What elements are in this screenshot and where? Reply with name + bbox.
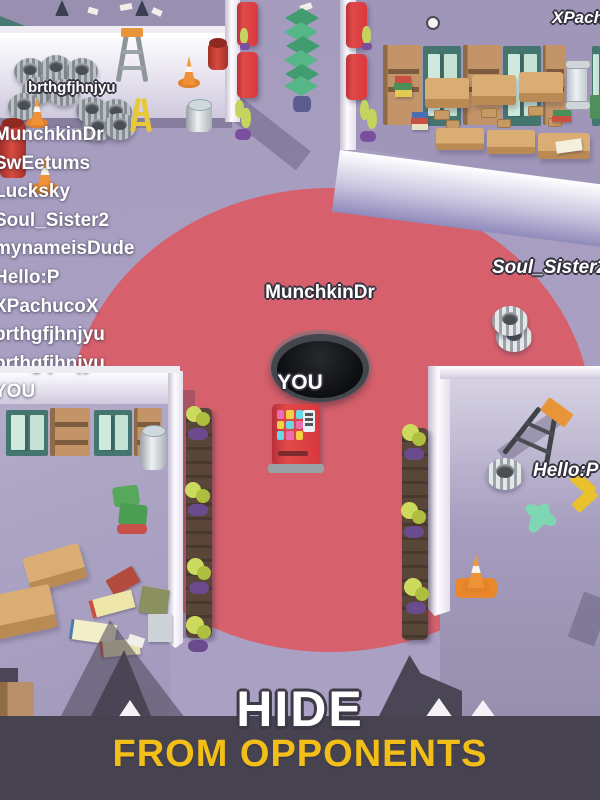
wall-segment [440, 366, 600, 379]
leaderboard-entry: brthgfjhnjyu [0, 321, 214, 350]
bookshelf [50, 408, 90, 456]
vending-machine [237, 52, 258, 98]
books-stack [395, 90, 412, 97]
vending-machine [346, 54, 367, 100]
player-nametag: Soul_Sister2 [492, 257, 600, 279]
table [436, 128, 484, 150]
chair [481, 108, 497, 118]
potted-plant [182, 406, 216, 440]
tire [486, 458, 524, 490]
leaderboard-entry: Lucksky [0, 178, 214, 207]
leaderboard: MunchkinDr SwEetums Lucksky Soul_Sister2… [0, 121, 214, 407]
player-nametag: Hello:P [533, 460, 598, 482]
you-label: YOU [255, 371, 345, 395]
gift-box [590, 95, 600, 119]
traffic-cone [178, 58, 200, 88]
leaderboard-entry: MunchkinDr [0, 121, 214, 150]
table [472, 75, 516, 105]
leaderboard-entry: XPachucoX [0, 293, 214, 322]
promo-subheadline: FROM OPPONENTS [0, 733, 600, 776]
potted-plant [284, 8, 320, 112]
potted-plant [182, 482, 216, 516]
leaderboard-entry: YOU [0, 378, 214, 407]
wall-segment [168, 371, 183, 648]
red-barrel [208, 42, 228, 70]
chair [528, 106, 544, 116]
leaderboard-entry: Hello:P [0, 264, 214, 293]
potted-plant [398, 502, 432, 538]
player-nametag: brthgfjhnjyu [28, 79, 115, 96]
wall-top-edge [0, 366, 180, 373]
books-stack [552, 116, 571, 122]
potted-plant [398, 424, 432, 460]
bucket [140, 428, 166, 470]
wall-clock [426, 16, 440, 30]
table [519, 72, 563, 102]
leaderboard-entry: brthgfjhnjyu [0, 350, 214, 379]
chair [497, 119, 511, 128]
bench [186, 408, 212, 638]
cactus [233, 100, 253, 140]
cactus [238, 28, 252, 50]
books-stack [412, 124, 428, 130]
cabinet [6, 410, 48, 456]
books-pile [148, 614, 172, 642]
cactus [360, 26, 374, 50]
leaderboard-entry: SwEetums [0, 150, 214, 179]
traffic-cone [462, 556, 490, 592]
potted-plant [182, 616, 216, 652]
vending-machine [272, 404, 320, 466]
potted-plant [400, 578, 434, 614]
hourglass [567, 62, 587, 108]
promo-headline: HIDE [0, 680, 600, 738]
tire [492, 306, 528, 336]
table [487, 130, 535, 154]
player-nametag: MunchkinDr [240, 282, 400, 304]
leaderboard-entry: Soul_Sister2 [0, 207, 214, 236]
chair [434, 110, 450, 120]
books-pile [138, 586, 170, 616]
ladder [114, 32, 150, 82]
leaderboard-entry: mynameisDude [0, 235, 214, 264]
books-stack [395, 76, 411, 83]
potted-plant [183, 558, 217, 594]
table [425, 78, 469, 108]
game-screenshot: brthgfjhnjyu MunchkinDr Soul_Sister2 XPa… [0, 0, 600, 800]
player-nametag: XPachucoX [552, 8, 600, 28]
books-stack [394, 83, 412, 90]
cactus [358, 100, 378, 142]
cabinet [94, 410, 132, 456]
toy-blocks [117, 524, 147, 534]
